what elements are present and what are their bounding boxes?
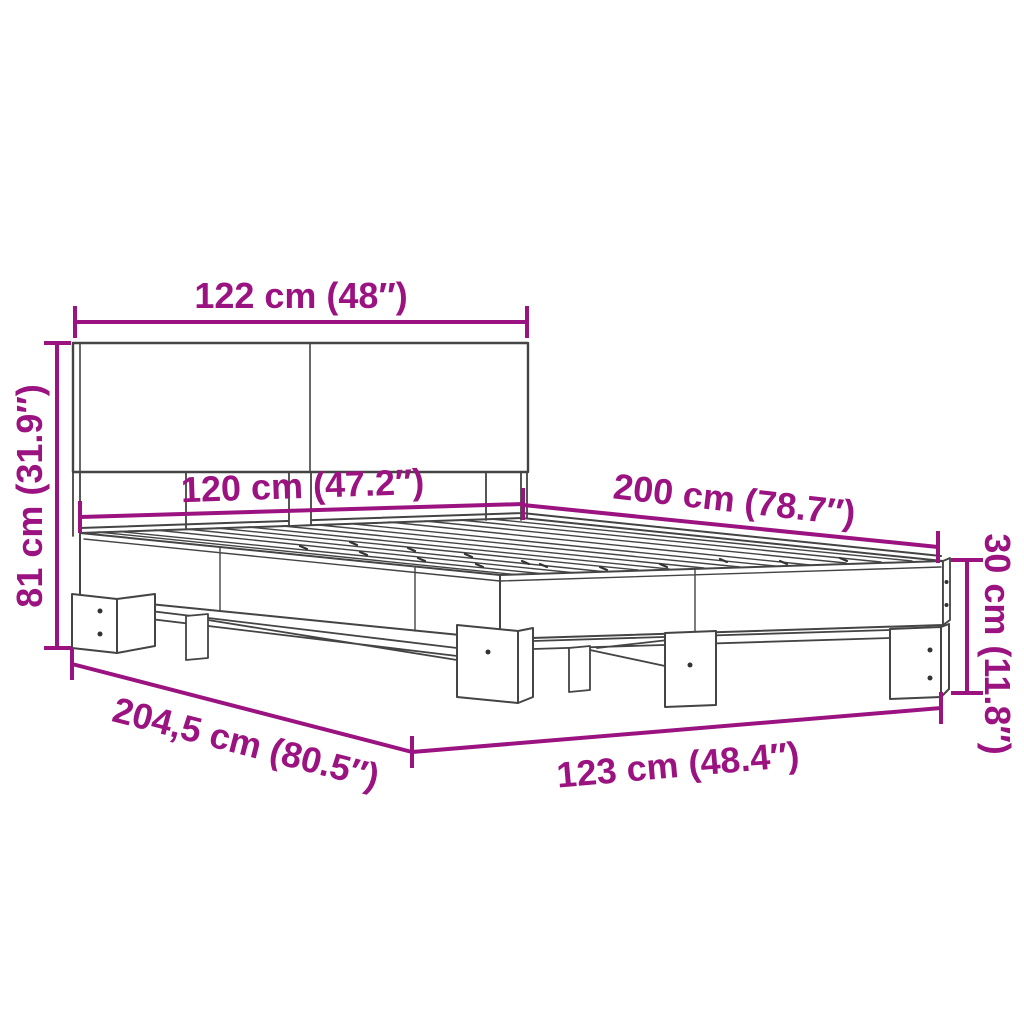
dim-label-headboard-width: 122 cm (48″) — [194, 275, 407, 316]
bed-frame-dimension-diagram: 122 cm (48″) 81 cm (31.9″) 120 cm (47.2″… — [0, 0, 1024, 1024]
foot-right-leg — [890, 624, 949, 699]
foot-rail — [500, 561, 943, 639]
dim-label-total-height: 81 cm (31.9″) — [9, 384, 50, 607]
left-center-support-leg — [186, 614, 208, 660]
diagram-canvas: 122 cm (48″) 81 cm (31.9″) 120 cm (47.2″… — [0, 0, 1024, 1024]
headboard — [73, 343, 528, 472]
dim-label-frame-height: 30 cm (11.8″) — [977, 533, 1018, 754]
foot-center-support-leg — [569, 646, 590, 692]
rail-end-cap — [943, 558, 950, 625]
foot-middle-leg — [665, 631, 716, 707]
dim-label-bed-length: 200 cm (78.7″) — [611, 465, 857, 533]
foot-left-leg — [457, 625, 533, 703]
dim-label-bed-width-outer: 123 cm (48.4″) — [555, 734, 801, 796]
dim-label-bed-width-inner: 120 cm (47.2″) — [180, 461, 425, 510]
head-left-leg — [72, 594, 155, 653]
dim-label-diagonal-length: 204,5 cm (80.5″) — [109, 689, 384, 797]
